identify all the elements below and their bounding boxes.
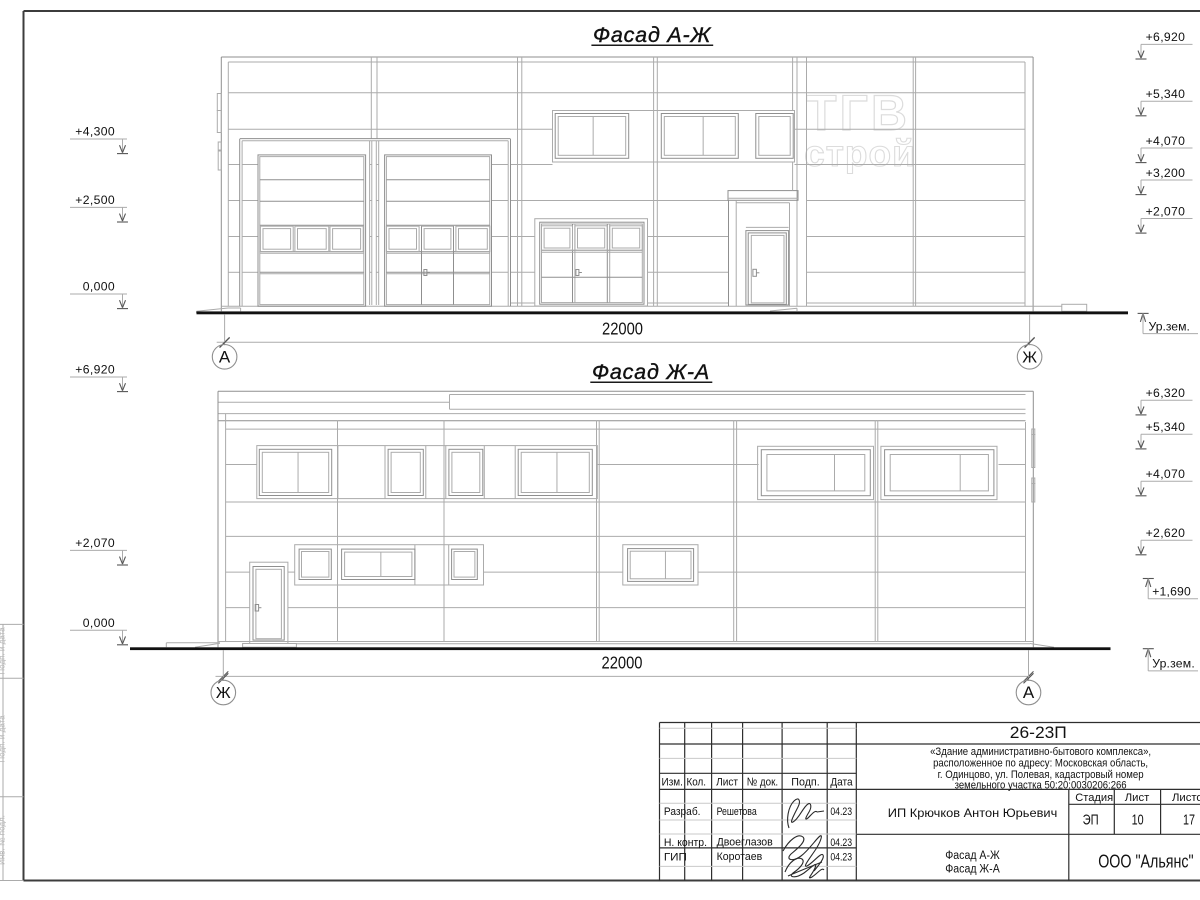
svg-text:строй: строй [804, 133, 916, 174]
svg-text:Фасад Ж-А: Фасад Ж-А [945, 864, 1000, 876]
svg-text:А: А [219, 347, 231, 366]
svg-text:Кол.: Кол. [687, 777, 707, 789]
svg-text:Дата: Дата [830, 777, 853, 789]
svg-text:10: 10 [1132, 812, 1144, 828]
svg-text:+6,920: +6,920 [75, 363, 115, 377]
svg-text:Ур.зем.: Ур.зем. [1149, 319, 1190, 333]
svg-text:+4,070: +4,070 [1146, 467, 1186, 481]
svg-text:+2,500: +2,500 [75, 193, 115, 207]
svg-text:№ док.: № док. [747, 777, 778, 789]
svg-text:расположенное по адресу: Моско: расположенное по адресу: Московская обла… [933, 758, 1148, 770]
svg-text:04.23: 04.23 [830, 851, 852, 863]
svg-text:0,000: 0,000 [83, 616, 115, 630]
svg-text:Решетова: Решетова [717, 806, 758, 818]
svg-text:Разраб.: Разраб. [664, 806, 701, 818]
svg-text:Фасад Ж-А: Фасад Ж-А [592, 360, 710, 384]
svg-text:22000: 22000 [602, 319, 643, 339]
svg-text:Ж: Ж [1022, 349, 1037, 366]
svg-text:+5,340: +5,340 [1146, 87, 1186, 101]
svg-text:ООО "Альянс": ООО "Альянс" [1098, 850, 1193, 871]
svg-text:Подп.: Подп. [791, 777, 819, 789]
svg-text:Коротаев: Коротаев [717, 851, 763, 863]
svg-text:Лист: Лист [1125, 792, 1150, 804]
svg-text:Подп. и дата: Подп. и дата [0, 715, 7, 763]
svg-text:+4,300: +4,300 [75, 125, 115, 139]
svg-text:Фасад А-Ж: Фасад А-Ж [945, 850, 1000, 862]
svg-text:Лист: Лист [716, 777, 739, 789]
svg-text:+4,070: +4,070 [1146, 134, 1186, 148]
svg-text:Ж: Ж [216, 685, 231, 702]
svg-text:Стадия: Стадия [1075, 792, 1113, 804]
svg-text:+6,320: +6,320 [1146, 386, 1186, 400]
svg-text:+2,620: +2,620 [1146, 526, 1186, 540]
svg-text:04.23: 04.23 [830, 806, 852, 818]
svg-text:+6,920: +6,920 [1146, 30, 1186, 44]
svg-text:ЭП: ЭП [1083, 812, 1099, 828]
svg-text:26-23П: 26-23П [1010, 723, 1067, 742]
svg-text:ИП Крючков Антон Юрьевич: ИП Крючков Антон Юрьевич [888, 806, 1058, 820]
svg-text:Инв. № подл.: Инв. № подл. [0, 815, 7, 865]
svg-text:земельного участка 50:20:00302: земельного участка 50:20:0030206:266 [955, 780, 1127, 792]
svg-text:«Здание административно-бытово: «Здание административно-бытового комплек… [930, 746, 1151, 758]
svg-text:ГИП: ГИП [664, 851, 687, 863]
svg-text:0,000: 0,000 [83, 280, 115, 294]
svg-text:Н. контр.: Н. контр. [664, 837, 707, 849]
svg-text:+5,340: +5,340 [1146, 420, 1186, 434]
svg-text:Подп. и дата: Подп. и дата [0, 627, 7, 675]
svg-text:Фасад А-Ж: Фасад А-Ж [593, 23, 712, 47]
svg-text:А: А [1023, 683, 1035, 702]
svg-text:Ур.зем.: Ур.зем. [1152, 657, 1195, 671]
svg-text:+3,200: +3,200 [1146, 166, 1186, 180]
svg-text:+2,070: +2,070 [75, 536, 115, 550]
svg-text:17: 17 [1183, 812, 1195, 828]
svg-text:22000: 22000 [602, 653, 643, 673]
svg-text:Изм.: Изм. [662, 777, 683, 789]
svg-text:+1,690: +1,690 [1152, 584, 1191, 598]
svg-text:Двоеглазов: Двоеглазов [717, 837, 773, 849]
svg-text:+2,070: +2,070 [1146, 204, 1186, 218]
svg-text:04.23: 04.23 [830, 837, 852, 849]
svg-text:Листов: Листов [1172, 792, 1200, 804]
